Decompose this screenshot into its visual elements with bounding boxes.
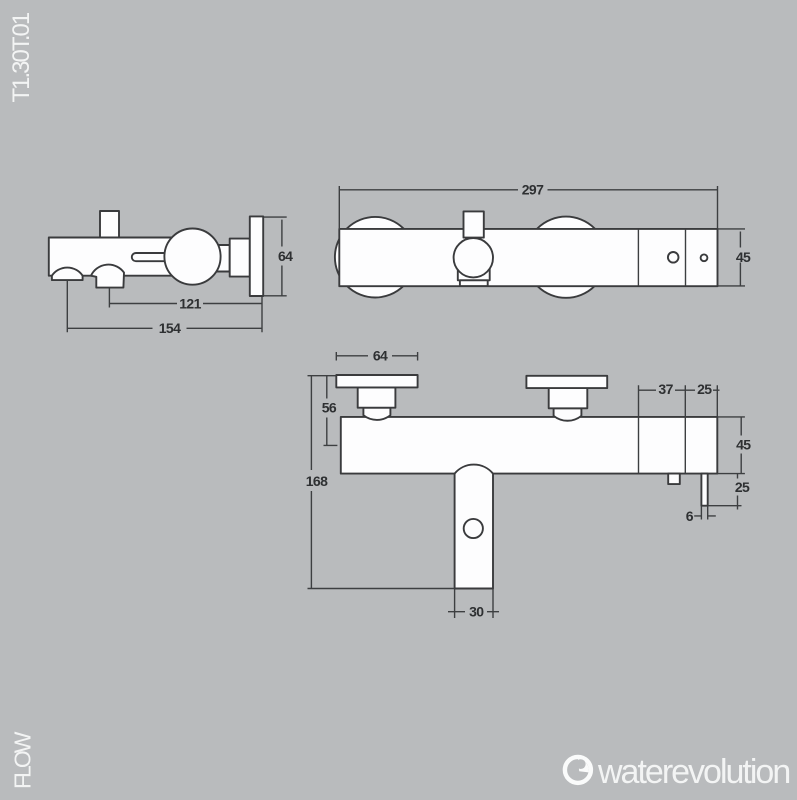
- svg-text:168: 168: [306, 473, 328, 489]
- svg-text:25: 25: [735, 479, 750, 495]
- svg-text:64: 64: [373, 348, 388, 364]
- svg-text:T1.30T.01: T1.30T.01: [8, 12, 35, 102]
- svg-text:30: 30: [469, 604, 484, 620]
- svg-text:FLOW: FLOW: [10, 731, 36, 789]
- svg-text:45: 45: [736, 249, 751, 265]
- svg-text:64: 64: [278, 248, 293, 264]
- svg-text:45: 45: [736, 437, 751, 453]
- svg-text:56: 56: [322, 400, 337, 416]
- svg-text:121: 121: [179, 295, 201, 311]
- svg-text:154: 154: [159, 320, 181, 336]
- svg-text:297: 297: [522, 182, 544, 198]
- svg-text:6: 6: [686, 508, 694, 524]
- svg-text:37: 37: [658, 381, 673, 397]
- svg-text:waterevolution: waterevolution: [597, 753, 789, 791]
- svg-text:25: 25: [697, 381, 712, 397]
